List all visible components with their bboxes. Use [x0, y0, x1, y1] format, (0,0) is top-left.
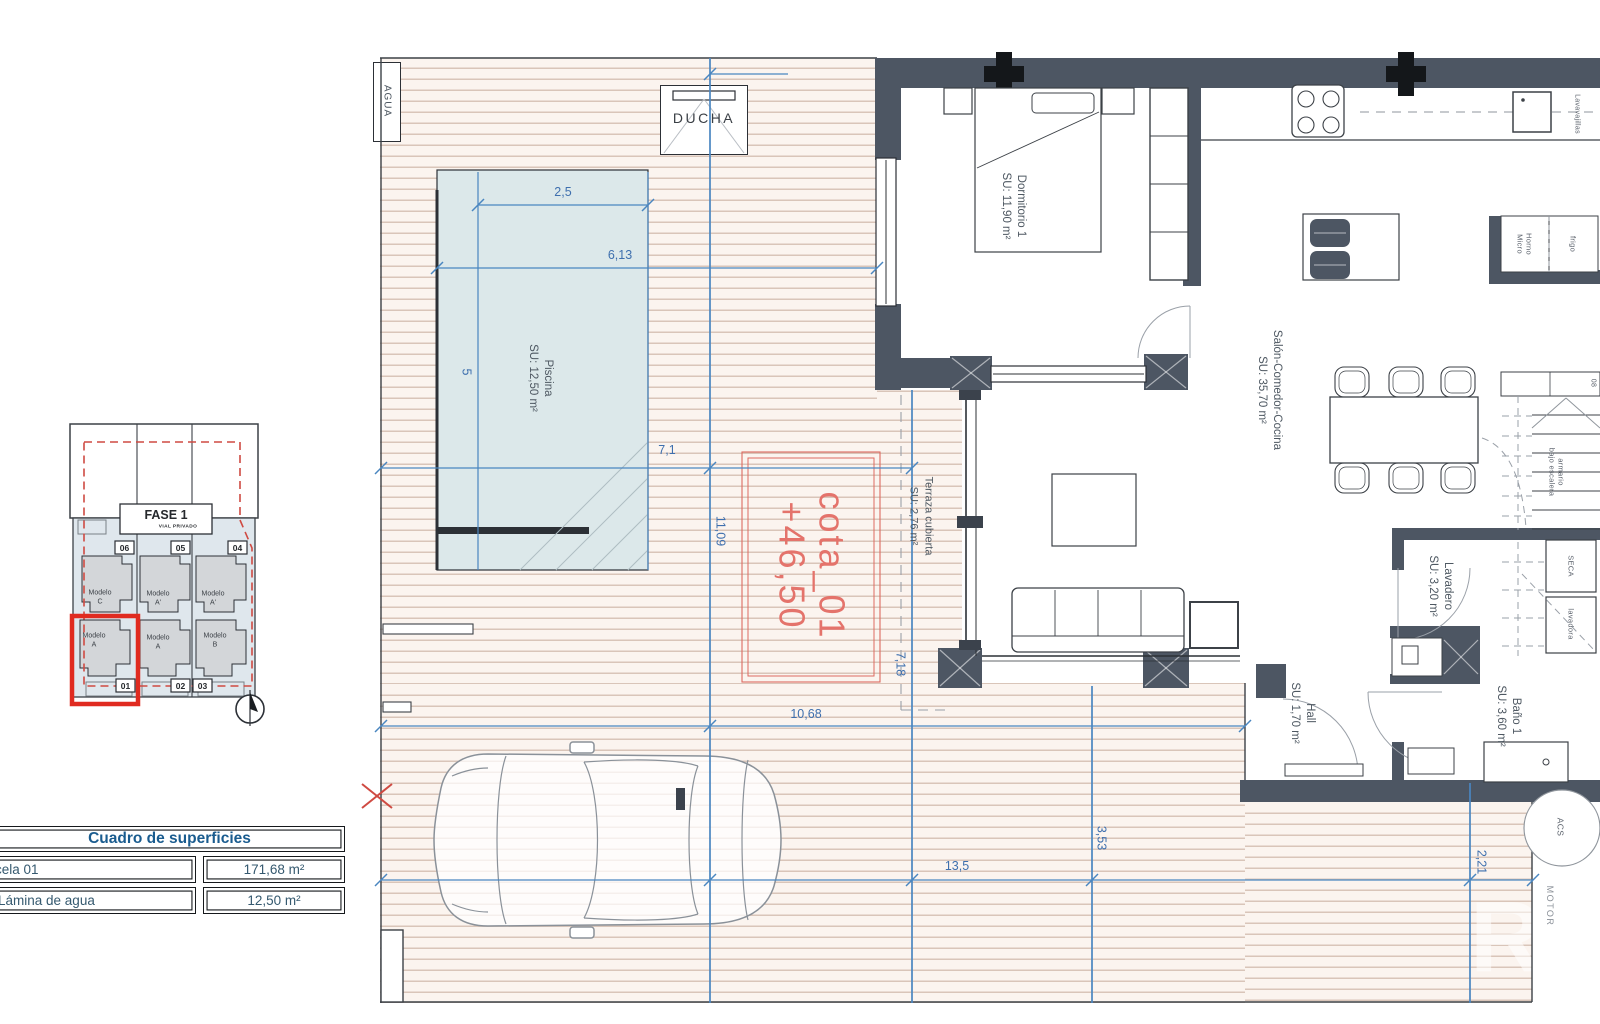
- model-word: Modelo: [147, 634, 170, 641]
- kitchen: [1201, 85, 1600, 280]
- washer-label: lavadora: [1566, 608, 1575, 639]
- fixture-text: Micro: [1515, 234, 1524, 254]
- wall-pier-symbols: [984, 52, 1426, 96]
- level-value: +46,50: [771, 501, 811, 630]
- model-word: Modelo: [204, 632, 227, 639]
- plot-number-04: 04: [233, 543, 242, 553]
- room-label-dormitorio: Dormitorio 1 SU: 11,90 m²: [998, 173, 1028, 240]
- dim-deck-c: 10,68: [790, 707, 821, 721]
- dryer-label: SECA: [1566, 555, 1575, 577]
- phase-sub-label: VIAL PRIVADO: [159, 525, 197, 530]
- model-word: Modelo: [83, 632, 106, 639]
- dim-text: 5: [458, 369, 475, 376]
- room-area: SU: 11,90 m²: [998, 173, 1013, 240]
- room-name: Piscina: [540, 359, 555, 396]
- room-area: SU: 3,20 m²: [1425, 555, 1440, 616]
- room-label-terraza: Terraza cubierta SU: 2,76 m²: [906, 477, 935, 556]
- plot-number-boxes: [115, 541, 247, 692]
- north-arrow-icon: [236, 690, 264, 726]
- model-letter: A: [92, 641, 97, 648]
- room-area: SU: 12,50 m²: [525, 344, 540, 412]
- stair-number-label: 08: [1588, 379, 1597, 387]
- room-name: Hall: [1302, 703, 1317, 723]
- room-area: SU: 2,76 m²: [906, 487, 921, 546]
- room-label-lavadero: Lavadero SU: 3,20 m²: [1425, 555, 1455, 616]
- stairs: [1482, 372, 1600, 530]
- selected-plot-highlight: [72, 616, 138, 704]
- room-label-hall: Hall SU: 1,70 m²: [1287, 682, 1317, 743]
- acs-label: ACS: [1555, 818, 1566, 836]
- dim-east-height: 2,21: [1473, 850, 1490, 874]
- shower-label: DUCHA: [673, 110, 735, 126]
- fixture-text: MOTOR: [1543, 886, 1555, 927]
- dishwasher-label: Lavavajillas: [1572, 94, 1581, 134]
- dim-deck-height: 11,09: [712, 516, 729, 546]
- dim-text: 7,18: [892, 652, 909, 676]
- under-stair-closet-label: armario bajo escalera: [1547, 448, 1566, 497]
- fixture-text: bajo escalera: [1547, 448, 1556, 497]
- room-label-piscina: Piscina SU: 12,50 m²: [525, 344, 555, 412]
- surfaces-row-label: arcela 01: [0, 856, 196, 883]
- model-word: Modelo: [147, 590, 170, 597]
- fixture-text: 08: [1588, 379, 1597, 387]
- motor-label: MOTOR: [1543, 886, 1555, 927]
- dim-south-height: 3,53: [1093, 826, 1110, 850]
- dim-deck-d: 13,5: [945, 859, 969, 873]
- room-name: Lavadero: [1440, 562, 1455, 610]
- level-name: cota_01: [811, 491, 851, 640]
- logo-watermark: R: [1470, 880, 1542, 995]
- level-label: cota_01 +46,50: [771, 491, 852, 640]
- dim-pool-width: 2,5: [554, 185, 571, 199]
- model-label-b: ModeloB: [204, 632, 227, 650]
- model-letter: A': [210, 599, 216, 606]
- dim-deck-a: 6,13: [608, 248, 632, 262]
- room-area: SU: 3,60 m²: [1493, 685, 1508, 746]
- floor-plan-sheet: R: [0, 0, 1600, 1024]
- fixture-text: frigo: [1568, 236, 1577, 252]
- dim-text: 2,21: [1473, 850, 1490, 874]
- room-area: SU: 35,70 m²: [1254, 356, 1269, 424]
- fixture-text: ACS: [1555, 818, 1566, 836]
- bedroom-furniture: [944, 88, 1188, 280]
- fixture-text: Lavavajillas: [1572, 94, 1581, 134]
- plot-number-06: 06: [120, 543, 129, 553]
- dim-terrace-height: 7,18: [892, 652, 909, 676]
- surfaces-row-value: 171,68 m²: [203, 856, 345, 883]
- agua-text: AGUA: [380, 85, 393, 117]
- surfaces-table-title: Cuadro de superficies: [0, 826, 345, 852]
- deck-area-south: [380, 683, 1245, 1003]
- column-hatch: [940, 356, 1187, 686]
- surfaces-row-value: 12,50 m²: [203, 887, 345, 914]
- bedroom-door-arc: [1138, 306, 1190, 358]
- dim-text: 3,53: [1093, 826, 1110, 850]
- oven-micro-label: Horno Micro: [1515, 233, 1534, 255]
- model-word: Modelo: [89, 589, 112, 596]
- agua-label: AGUA: [380, 85, 393, 117]
- surfaces-row-label: p. Lámina de agua: [0, 887, 196, 914]
- porch-rects: [86, 682, 244, 696]
- fixture-text: armario: [1556, 458, 1565, 486]
- dim-pool-length: 5: [458, 369, 475, 376]
- model-label-c: ModeloC: [89, 589, 112, 607]
- living-furniture: [1012, 367, 1478, 652]
- model-letter: A': [155, 599, 161, 606]
- plot-number-05: 05: [176, 543, 185, 553]
- model-letter: A: [156, 643, 161, 650]
- room-area: SU: 1,70 m²: [1287, 682, 1302, 743]
- fixture-text: Horno: [1524, 233, 1533, 255]
- model-label-a1: ModeloA': [147, 590, 170, 608]
- model-label-a3: ModeloA: [83, 632, 106, 650]
- dim-deck-b: 7,1: [658, 443, 675, 457]
- room-label-salon: Salón-Comedor-Cocina SU: 35,70 m²: [1254, 330, 1284, 450]
- room-name: Salón-Comedor-Cocina: [1269, 330, 1284, 450]
- room-name: Baño 1: [1508, 698, 1523, 734]
- plot-number-03: 03: [198, 681, 207, 691]
- room-label-bano: Baño 1 SU: 3,60 m²: [1493, 685, 1523, 746]
- dining-chairs: [1335, 367, 1475, 493]
- fixture-text: SECA: [1566, 555, 1575, 577]
- phase-label: FASE 1: [144, 509, 187, 522]
- house-footprints: [80, 556, 246, 676]
- site-key: [70, 424, 264, 726]
- model-label-a4: ModeloA: [147, 634, 170, 652]
- plot-number-01: 01: [121, 681, 130, 691]
- room-name: Terraza cubierta: [921, 477, 936, 556]
- model-label-a2: ModeloA': [202, 590, 225, 608]
- model-word: Modelo: [202, 590, 225, 597]
- fridge-label: frigo: [1568, 236, 1577, 252]
- plot-number-02: 02: [176, 681, 185, 691]
- fixture-text: lavadora: [1566, 608, 1575, 639]
- room-name: Dormitorio 1: [1013, 175, 1028, 238]
- dim-text: 11,09: [712, 516, 729, 546]
- model-letter: C: [97, 598, 102, 605]
- model-letter: B: [213, 641, 218, 648]
